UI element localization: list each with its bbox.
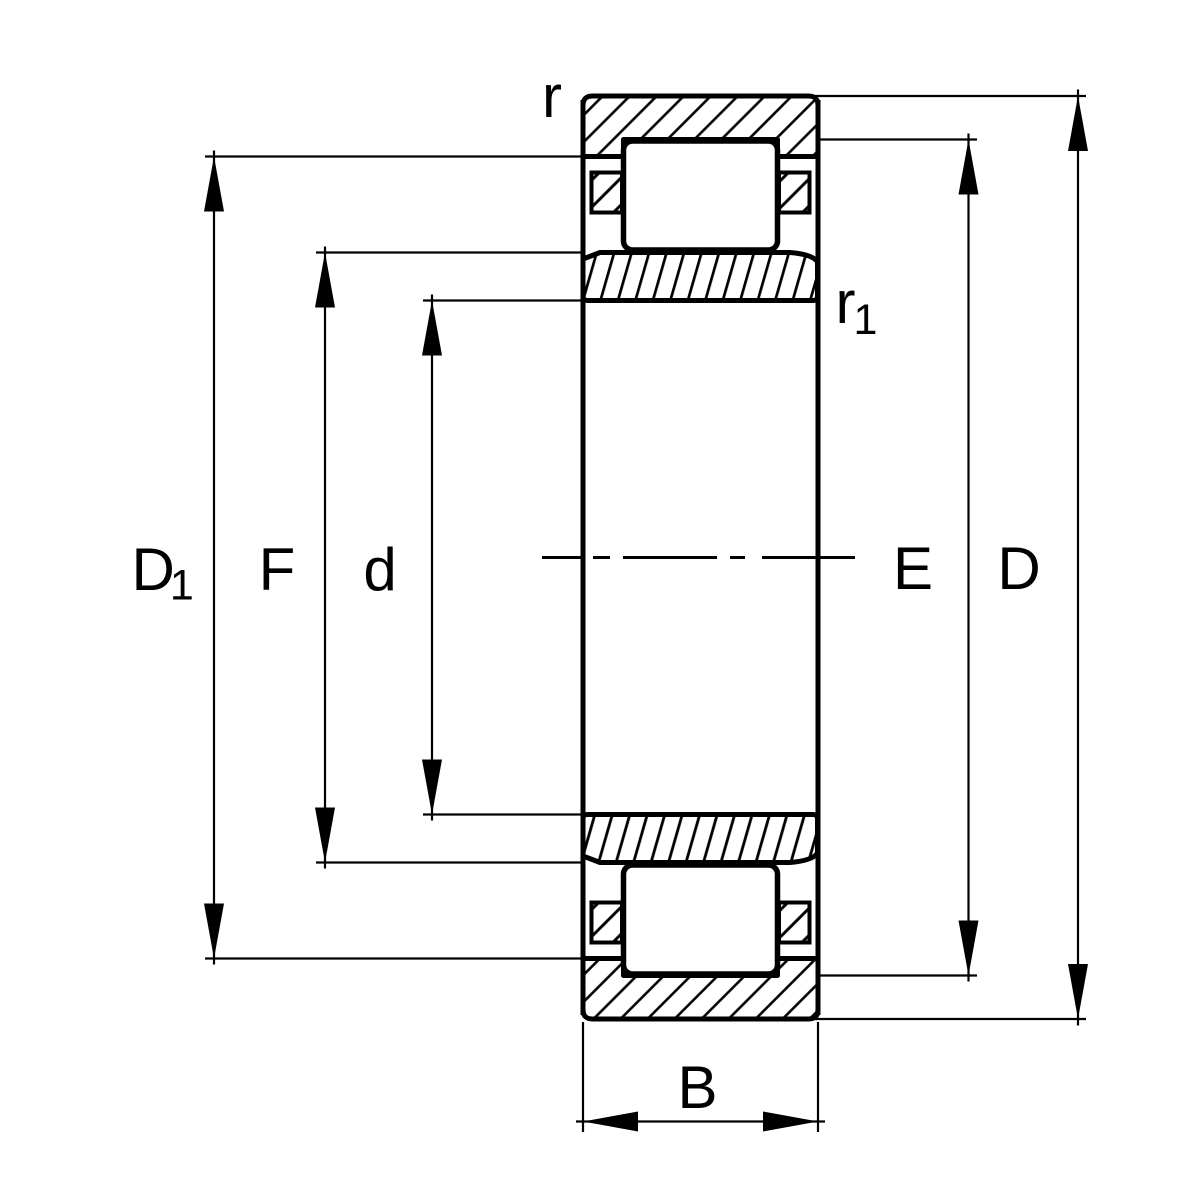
svg-text:F: F — [259, 536, 296, 603]
svg-text:r: r — [542, 63, 562, 130]
svg-text:d: d — [363, 536, 396, 603]
svg-text:D: D — [997, 535, 1040, 602]
svg-text:E: E — [893, 535, 933, 602]
svg-text:B: B — [677, 1054, 717, 1121]
